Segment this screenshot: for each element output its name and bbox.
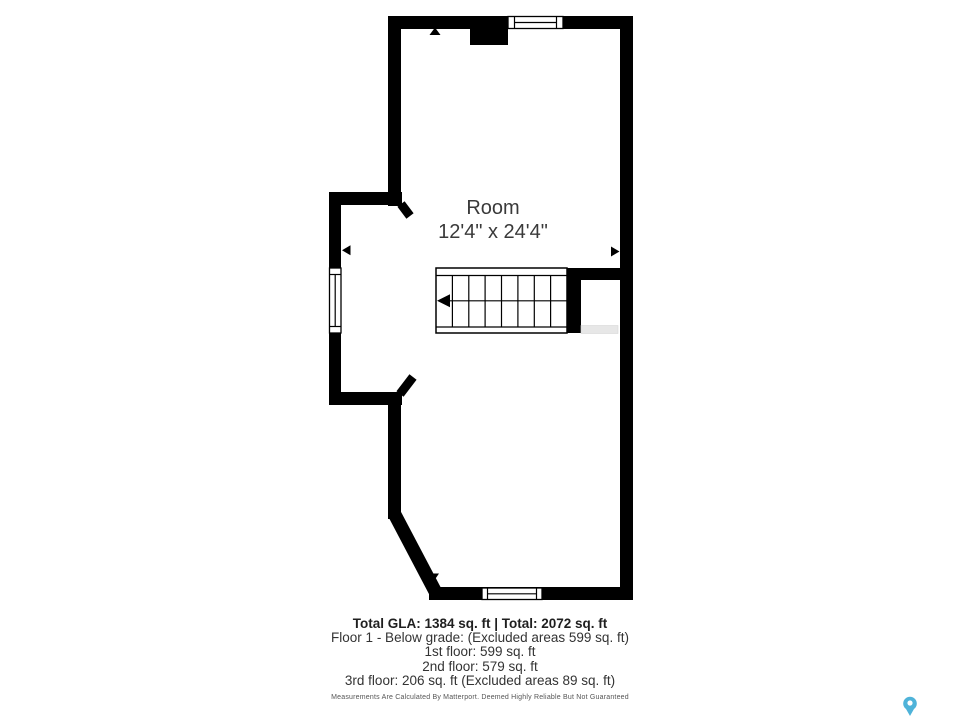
room-dimensions-label: 12'4" x 24'4" [373, 221, 613, 244]
chimney-notch [470, 29, 508, 45]
measurement-disclaimer: Measurements Are Calculated By Matterpor… [0, 694, 960, 701]
open-door-lower [400, 377, 413, 394]
stair-top-wall [567, 268, 620, 280]
second-floor-line: 2nd floor: 579 sq. ft [0, 660, 960, 674]
total-gla-line: Total GLA: 1384 sq. ft | Total: 2072 sq.… [0, 617, 960, 631]
lower-left-wall [388, 392, 401, 519]
floorplan-drawing [0, 0, 960, 720]
window-left [330, 268, 342, 333]
interior-walls [567, 268, 620, 334]
window-top [508, 17, 563, 29]
area-summary: Total GLA: 1384 sq. ft | Total: 2072 sq.… [0, 617, 960, 688]
staircase [436, 268, 567, 333]
floor1-line: Floor 1 - Below grade: (Excluded areas 5… [0, 631, 960, 645]
first-floor-line: 1st floor: 599 sq. ft [0, 645, 960, 659]
dim-arrow-left [342, 245, 351, 255]
window-bottom [482, 588, 542, 600]
matterport-pin-icon [898, 692, 922, 718]
diagonal-wall [395, 514, 436, 591]
right-wall [620, 16, 633, 600]
third-floor-line: 3rd floor: 206 sq. ft (Excluded areas 89… [0, 674, 960, 688]
floorplan-page: Room 12'4" x 24'4" Total GLA: 1384 sq. f… [0, 0, 960, 720]
upper-left-wall [388, 16, 401, 206]
half-wall [581, 326, 618, 334]
room-name-label: Room [393, 197, 593, 220]
dim-arrow-right [611, 247, 620, 257]
